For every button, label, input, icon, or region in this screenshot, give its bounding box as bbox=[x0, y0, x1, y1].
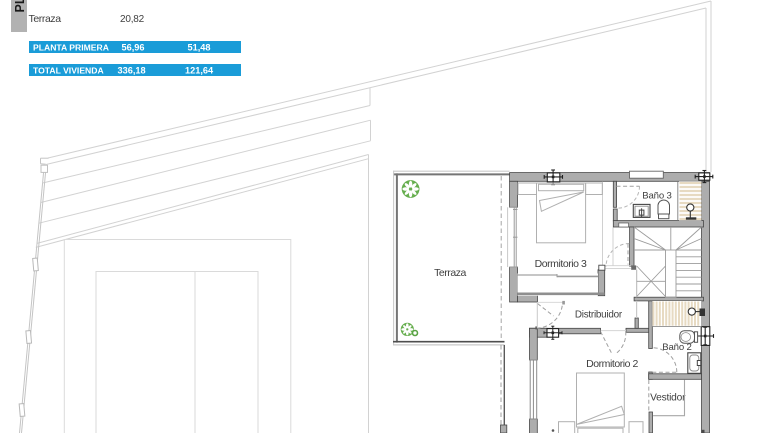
svg-text:PLANTA PRIMERA: PLANTA PRIMERA bbox=[13, 0, 27, 13]
svg-text:Terraza: Terraza bbox=[434, 267, 466, 279]
svg-text:Baño 3: Baño 3 bbox=[642, 190, 672, 201]
svg-text:Dormitorio 2: Dormitorio 2 bbox=[586, 358, 638, 370]
svg-text:Distribuidor: Distribuidor bbox=[575, 309, 623, 320]
svg-text:Dormitorio 3: Dormitorio 3 bbox=[535, 258, 587, 270]
svg-text:PLANTA PRIMERA: PLANTA PRIMERA bbox=[33, 43, 109, 53]
svg-text:Vestidor: Vestidor bbox=[650, 392, 686, 403]
svg-text:20,82: 20,82 bbox=[120, 14, 145, 25]
svg-text:Terraza: Terraza bbox=[29, 13, 62, 25]
svg-text:121,64: 121,64 bbox=[185, 66, 214, 76]
svg-text:56,96: 56,96 bbox=[122, 43, 145, 53]
svg-text:Baño 2: Baño 2 bbox=[662, 342, 692, 353]
svg-text:336,18: 336,18 bbox=[118, 66, 146, 76]
svg-text:51,48: 51,48 bbox=[188, 43, 211, 53]
svg-text:TOTAL VIVIENDA: TOTAL VIVIENDA bbox=[33, 66, 104, 76]
